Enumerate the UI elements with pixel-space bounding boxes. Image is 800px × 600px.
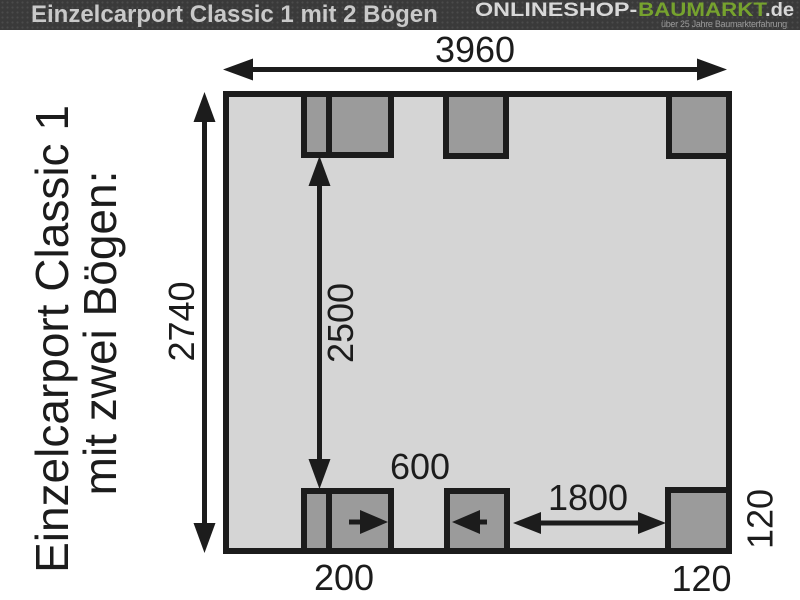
svg-text:2500: 2500 [320,283,361,363]
svg-text:mit zwei Bögen:: mit zwei Bögen: [74,171,126,496]
svg-text:1800: 1800 [548,477,628,518]
svg-text:Einzelcarport Classic 1: Einzelcarport Classic 1 [26,105,78,573]
svg-text:120: 120 [671,558,731,599]
svg-text:200: 200 [314,557,374,598]
svg-text:600: 600 [390,446,450,487]
svg-text:3960: 3960 [435,29,515,70]
svg-text:120: 120 [740,489,781,549]
svg-text:2740: 2740 [161,281,202,361]
